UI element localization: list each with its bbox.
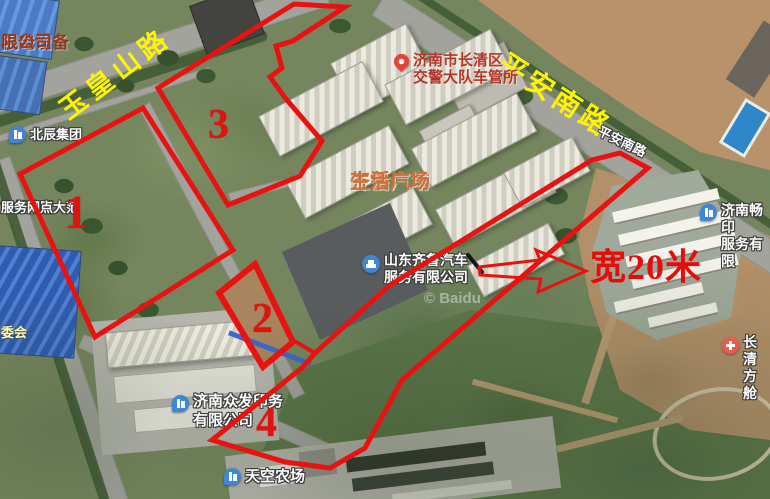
area-number-4: 4 <box>256 402 277 444</box>
width-note-label: 宽20米 <box>590 247 702 287</box>
area-number-2: 2 <box>252 298 273 340</box>
area-number-1: 1 <box>64 192 88 234</box>
fence-link-line <box>291 339 315 353</box>
width-arrow <box>479 250 586 292</box>
area-1-outline <box>20 108 233 337</box>
area-number-3: 3 <box>208 104 229 146</box>
satellite-map-view[interactable]: 机电设备 限公司 玉皇山路 北辰集团 市长清区大范 服务网点 济南市长清区 交警… <box>0 0 770 499</box>
